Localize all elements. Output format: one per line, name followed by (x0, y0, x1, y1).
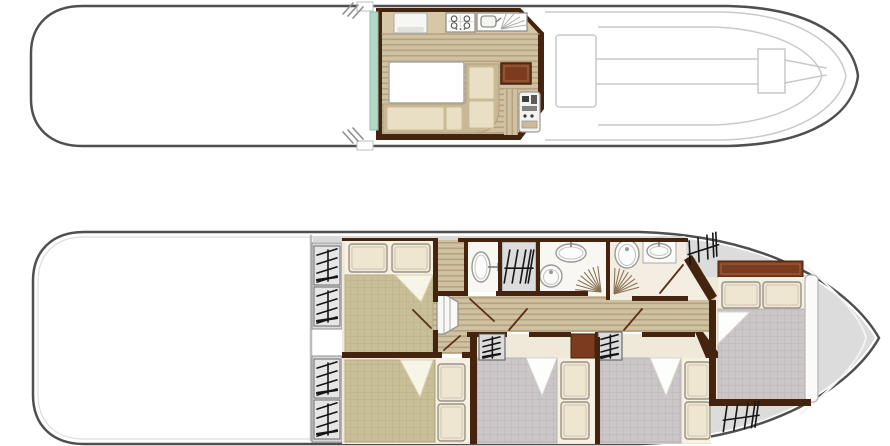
helm-floor (504, 89, 518, 135)
wall (462, 352, 470, 358)
pillow (438, 364, 465, 401)
bed-frame (805, 275, 818, 402)
boat-floorplan (0, 0, 890, 446)
console-instrument (531, 95, 537, 104)
wall (464, 238, 468, 296)
wall (536, 238, 540, 296)
seat-cushion (387, 107, 444, 130)
wall (433, 291, 468, 296)
windshield (370, 12, 378, 130)
helm-seat (522, 121, 537, 128)
lower-deck-plan (33, 232, 879, 444)
sideboard (718, 261, 803, 277)
console-instrument (522, 106, 537, 111)
pillow (561, 362, 589, 399)
floorplan-canvas (0, 0, 890, 446)
steps (437, 294, 458, 334)
wall (458, 238, 688, 242)
stove-icon (446, 13, 475, 32)
upper-deck-plan (31, 2, 858, 150)
landing-floor (438, 240, 466, 296)
corridor-floor (433, 296, 715, 332)
wall (642, 332, 695, 337)
wall (498, 238, 502, 296)
seat-cushion (446, 107, 462, 130)
toilet-icon (615, 240, 639, 268)
wall (470, 337, 477, 444)
seat-cushion (469, 67, 494, 99)
boarding-gate (357, 2, 373, 11)
wall (606, 238, 610, 300)
wall (342, 238, 438, 241)
pillow (561, 402, 589, 439)
wall (632, 296, 688, 301)
seat-cushion (469, 101, 494, 128)
wall (595, 337, 600, 444)
console-knob (530, 114, 533, 117)
console-knob (523, 114, 526, 117)
sink-drainer-icon (477, 12, 528, 31)
pillow (685, 362, 710, 399)
wall (496, 291, 588, 296)
boarding-gate (357, 141, 373, 150)
pillow (763, 282, 801, 308)
wall (709, 399, 811, 406)
toilet-icon (540, 265, 562, 287)
cabinet (571, 334, 595, 358)
wall (342, 352, 442, 358)
dinette-table (389, 62, 464, 103)
fridge-shade (397, 27, 424, 32)
pillow (438, 404, 465, 441)
console-instrument (522, 96, 529, 102)
pillow (685, 402, 710, 439)
wall (529, 332, 571, 337)
pillow (392, 244, 430, 272)
pillow (349, 244, 387, 272)
pillow (722, 282, 760, 308)
